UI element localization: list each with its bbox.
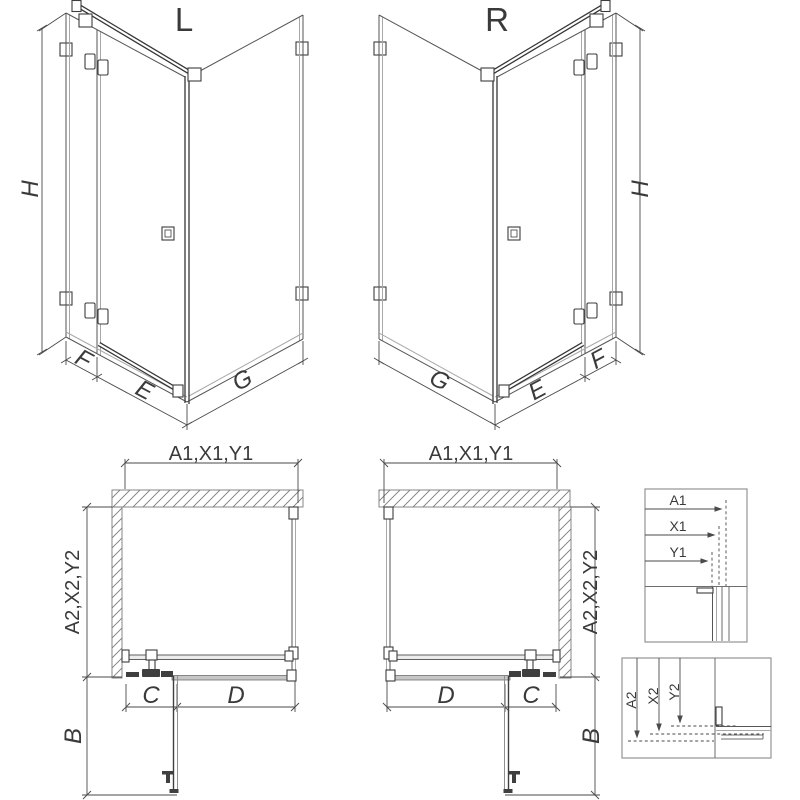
detail-depth-frame [622, 658, 771, 758]
shower-enclosure-dimension-diagram: L H F E G R H F E G A1,X1,Y1 A2,X2,Y2 B … [0, 0, 800, 800]
variant-label-left: L [175, 1, 193, 38]
side-dim-label-right: G [425, 364, 454, 397]
depth-dim-label-right-plan: A2,X2,Y2 [580, 550, 602, 635]
detail-depth-label-y2: Y2 [666, 683, 682, 700]
door-dim-label-left-plan: C [142, 682, 160, 709]
return-dim-label-right: F [586, 343, 613, 374]
swing-dim-label-right-plan: B [578, 728, 605, 744]
return-dim-label-left: F [71, 344, 98, 375]
variant-label-right: R [485, 1, 509, 38]
wall-section-side-left-plan [112, 507, 122, 678]
door-dim-label-right-plan: C [522, 682, 540, 709]
height-dim-label-right: H [627, 180, 654, 198]
detail-width-label-a1: A1 [669, 492, 686, 508]
plan-view-right: A1,X1,Y1 A2,X2,Y2 B D C [379, 443, 605, 799]
detail-width-label-y1: Y1 [669, 544, 686, 560]
detail-view-depth: A2 X2 Y2 [622, 658, 771, 758]
diagram-page: L H F E G R H F E G A1,X1,Y1 A2,X2,Y2 B … [0, 0, 800, 800]
wall-section-top-right-plan [379, 490, 570, 507]
width-dim-label-left-plan: A1,X1,Y1 [169, 443, 254, 465]
detail-width-label-x1: X1 [669, 518, 686, 534]
detail-depth-label-x2: X2 [645, 687, 661, 704]
fixed-dim-label-right-plan: D [437, 682, 454, 709]
width-dim-label-right-plan: A1,X1,Y1 [429, 443, 514, 465]
detail-view-width: A1 X1 Y1 [645, 489, 747, 642]
swing-dim-label-left-plan: B [60, 728, 87, 744]
detail-depth-label-a2: A2 [623, 691, 639, 708]
depth-dim-label-left-plan: A2,X2,Y2 [62, 550, 84, 635]
iso-view-right: R H F E G [374, 1, 654, 431]
fixed-dim-label-left-plan: D [227, 682, 244, 709]
detail-width-frame [645, 489, 747, 642]
door-dim-label-left: E [131, 375, 159, 407]
plan-view-left: A1,X1,Y1 A2,X2,Y2 B C D [60, 443, 303, 799]
height-dim-label-left: H [17, 180, 44, 198]
door-dim-label-right: E [524, 374, 552, 406]
wall-section-top-left-plan [112, 490, 303, 507]
iso-view-left: L H F E G [17, 1, 308, 431]
side-dim-label-left: G [228, 364, 257, 397]
wall-section-side-right-plan [559, 507, 571, 678]
